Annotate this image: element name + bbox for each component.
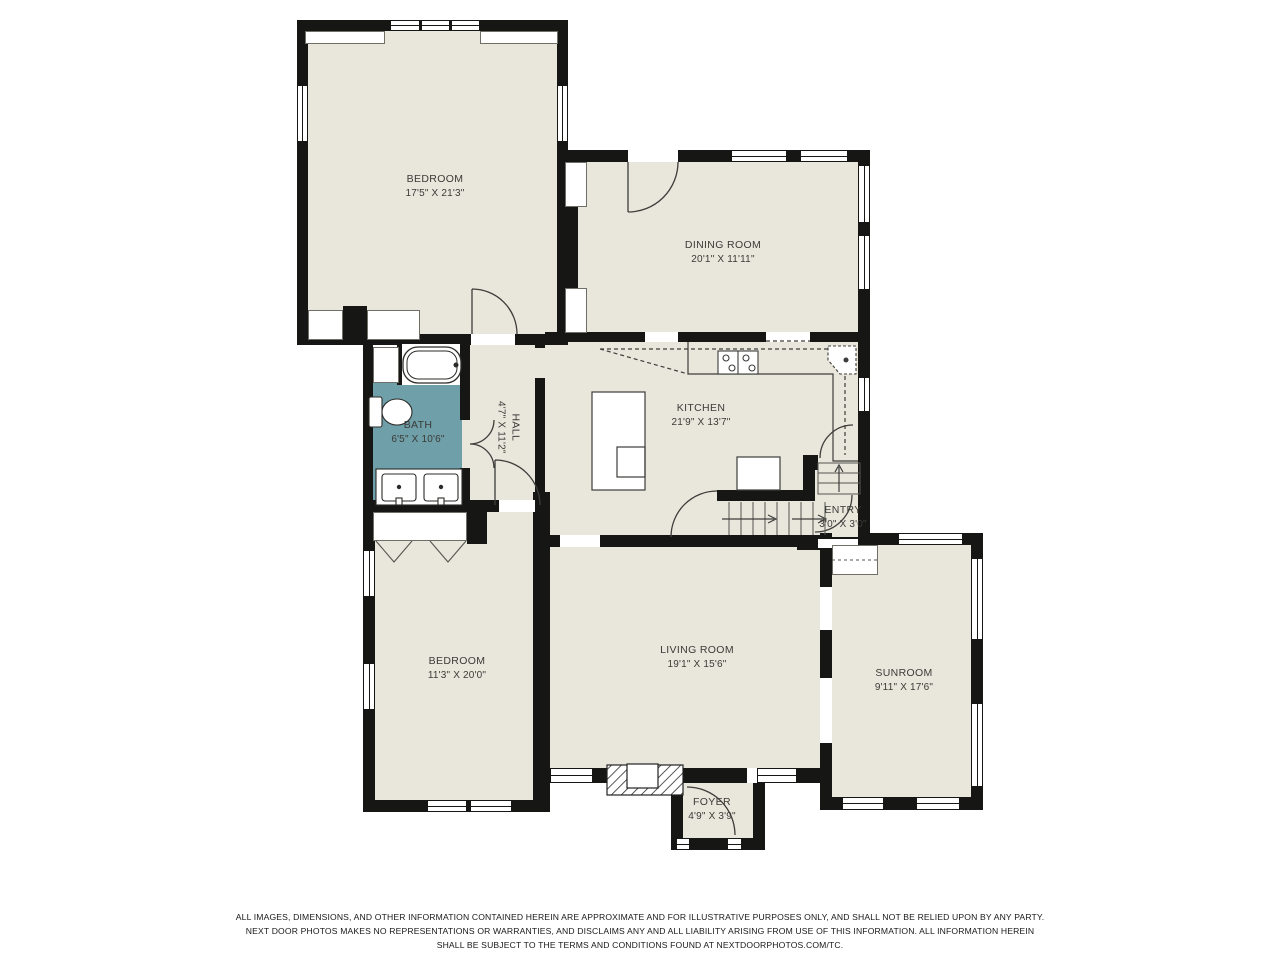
door-opening (628, 150, 678, 162)
window (470, 800, 512, 812)
room-name: HALL (508, 327, 523, 527)
wall-recess (565, 162, 587, 207)
disclaimer-line: SHALL BE SUBJECT TO THE TERMS AND CONDIT… (0, 939, 1280, 953)
wall (717, 490, 810, 501)
wall (683, 768, 747, 783)
wall (460, 335, 470, 420)
window (858, 165, 870, 223)
disclaimer-line: ALL IMAGES, DIMENSIONS, AND OTHER INFORM… (0, 911, 1280, 925)
wall (343, 306, 367, 345)
linen-closet (373, 347, 399, 383)
room-name: BATH (318, 418, 518, 433)
room-label-bedroom-1: BEDROOM 17'5" X 21'3" (335, 172, 535, 201)
room-name: ENTRY (743, 503, 943, 518)
wall (535, 335, 545, 348)
room-label-sunroom: SUNROOM 9'11" X 17'6" (804, 666, 1004, 695)
wall (810, 332, 858, 342)
room-dimensions: 20'1" X 11'11" (623, 253, 823, 267)
opening (560, 535, 600, 547)
window (916, 797, 960, 810)
wall (534, 768, 550, 783)
wall (545, 332, 645, 342)
room-name: LIVING ROOM (597, 643, 797, 658)
window (390, 20, 480, 31)
window (427, 800, 467, 812)
wall-recess (480, 31, 558, 44)
floor-plan-canvas: BEDROOM 17'5" X 21'3" DINING ROOM 20'1" … (0, 0, 1280, 960)
closet (832, 545, 878, 575)
window (757, 768, 797, 783)
window (858, 377, 870, 412)
closet (367, 310, 420, 340)
wall-recess (565, 288, 587, 333)
window (363, 550, 375, 597)
wall (797, 768, 832, 783)
window (557, 85, 568, 142)
wall (545, 535, 560, 547)
room-name: FOYER (612, 795, 812, 810)
opening (820, 587, 832, 630)
wall (535, 378, 545, 492)
room-label-foyer: FOYER 4'9" X 3'9" (612, 795, 812, 824)
wall (467, 500, 487, 544)
wall (297, 20, 308, 345)
window (898, 533, 963, 545)
wall-recess (305, 31, 385, 44)
wall (803, 455, 815, 501)
room-label-entry: ENTRY 3'0" X 3'0" (743, 503, 943, 532)
room-dimensions: 9'11" X 17'6" (804, 681, 1004, 695)
room-dimensions: 4'7" X 11'2" (494, 327, 508, 527)
wall (460, 468, 470, 502)
window-mullion (449, 20, 452, 31)
window-mullion (419, 20, 422, 31)
closet (373, 512, 467, 541)
room-dimensions: 19'1" X 15'6" (597, 658, 797, 672)
window (731, 150, 787, 162)
room-label-living-room: LIVING ROOM 19'1" X 15'6" (597, 643, 797, 672)
room-label-hall: HALL 4'7" X 11'2" (494, 327, 523, 527)
tub-alcove (402, 344, 460, 385)
window (858, 235, 870, 290)
wall (593, 768, 607, 783)
room-name: KITCHEN (601, 401, 801, 416)
room-name: BEDROOM (335, 172, 535, 187)
window (550, 768, 593, 783)
room-name: DINING ROOM (623, 238, 823, 253)
window (971, 703, 983, 787)
room-label-kitchen: KITCHEN 21'9" X 13'7" (601, 401, 801, 430)
room-label-dining-room: DINING ROOM 20'1" X 11'11" (623, 238, 823, 267)
room-dimensions: 6'5" X 10'6" (318, 433, 518, 447)
window (842, 797, 884, 810)
sidelight-window (727, 838, 742, 850)
room-name: SUNROOM (804, 666, 1004, 681)
window (971, 558, 983, 640)
sidelight-window (676, 838, 690, 850)
opening (747, 768, 757, 783)
room-label-bath: BATH 6'5" X 10'6" (318, 418, 518, 447)
room-dimensions: 11'3" X 20'0" (357, 669, 557, 683)
window (800, 150, 848, 162)
disclaimer-line: NEXT DOOR PHOTOS MAKES NO REPRESENTATION… (0, 925, 1280, 939)
disclaimer-text: ALL IMAGES, DIMENSIONS, AND OTHER INFORM… (0, 911, 1280, 952)
room-label-bedroom-2: BEDROOM 11'3" X 20'0" (357, 654, 557, 683)
wall (678, 332, 766, 342)
opening (645, 332, 678, 342)
window (297, 85, 308, 142)
closet (308, 310, 343, 340)
opening-pass-through (766, 332, 810, 342)
room-dimensions: 4'9" X 3'9" (612, 810, 812, 824)
room-dimensions: 21'9" X 13'7" (601, 416, 801, 430)
room-name: BEDROOM (357, 654, 557, 669)
room-dimensions: 17'5" X 21'3" (335, 187, 535, 201)
room-dimensions: 3'0" X 3'0" (743, 518, 943, 532)
